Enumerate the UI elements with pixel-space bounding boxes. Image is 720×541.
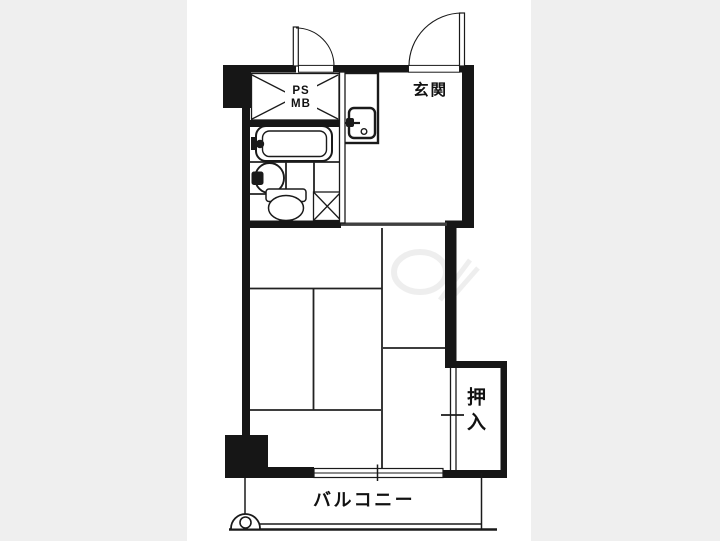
- closet-label: 押入: [465, 387, 484, 437]
- bath-entrance-wall: [340, 72, 346, 223]
- bathtub-faucet-icon: [251, 137, 256, 150]
- entrance-label: 玄関: [413, 83, 448, 99]
- balcony-sliding-window: [314, 465, 443, 482]
- washer-space-cross: [314, 192, 342, 221]
- watermark: [394, 252, 478, 300]
- bathtub: [251, 126, 332, 161]
- utility-door-swing: [293, 27, 334, 72]
- closet-sliding-door: [441, 368, 464, 470]
- pipe-space-label: PS: [284, 86, 318, 98]
- floor-plan-screenshot: 玄関 PS MB 押入 バルコニー: [0, 0, 720, 541]
- toilet: [266, 189, 306, 221]
- washbasin-tap-icon: [252, 172, 264, 186]
- hall-boundary-line: [341, 223, 447, 226]
- entrance-sink-unit: [343, 73, 378, 143]
- entrance-door-swing: [409, 13, 465, 72]
- balcony-drain: [231, 514, 260, 529]
- floor-plan-drawing: [0, 0, 720, 541]
- balcony-label: バルコニー: [313, 491, 415, 509]
- meter-box-label: MB: [284, 99, 318, 111]
